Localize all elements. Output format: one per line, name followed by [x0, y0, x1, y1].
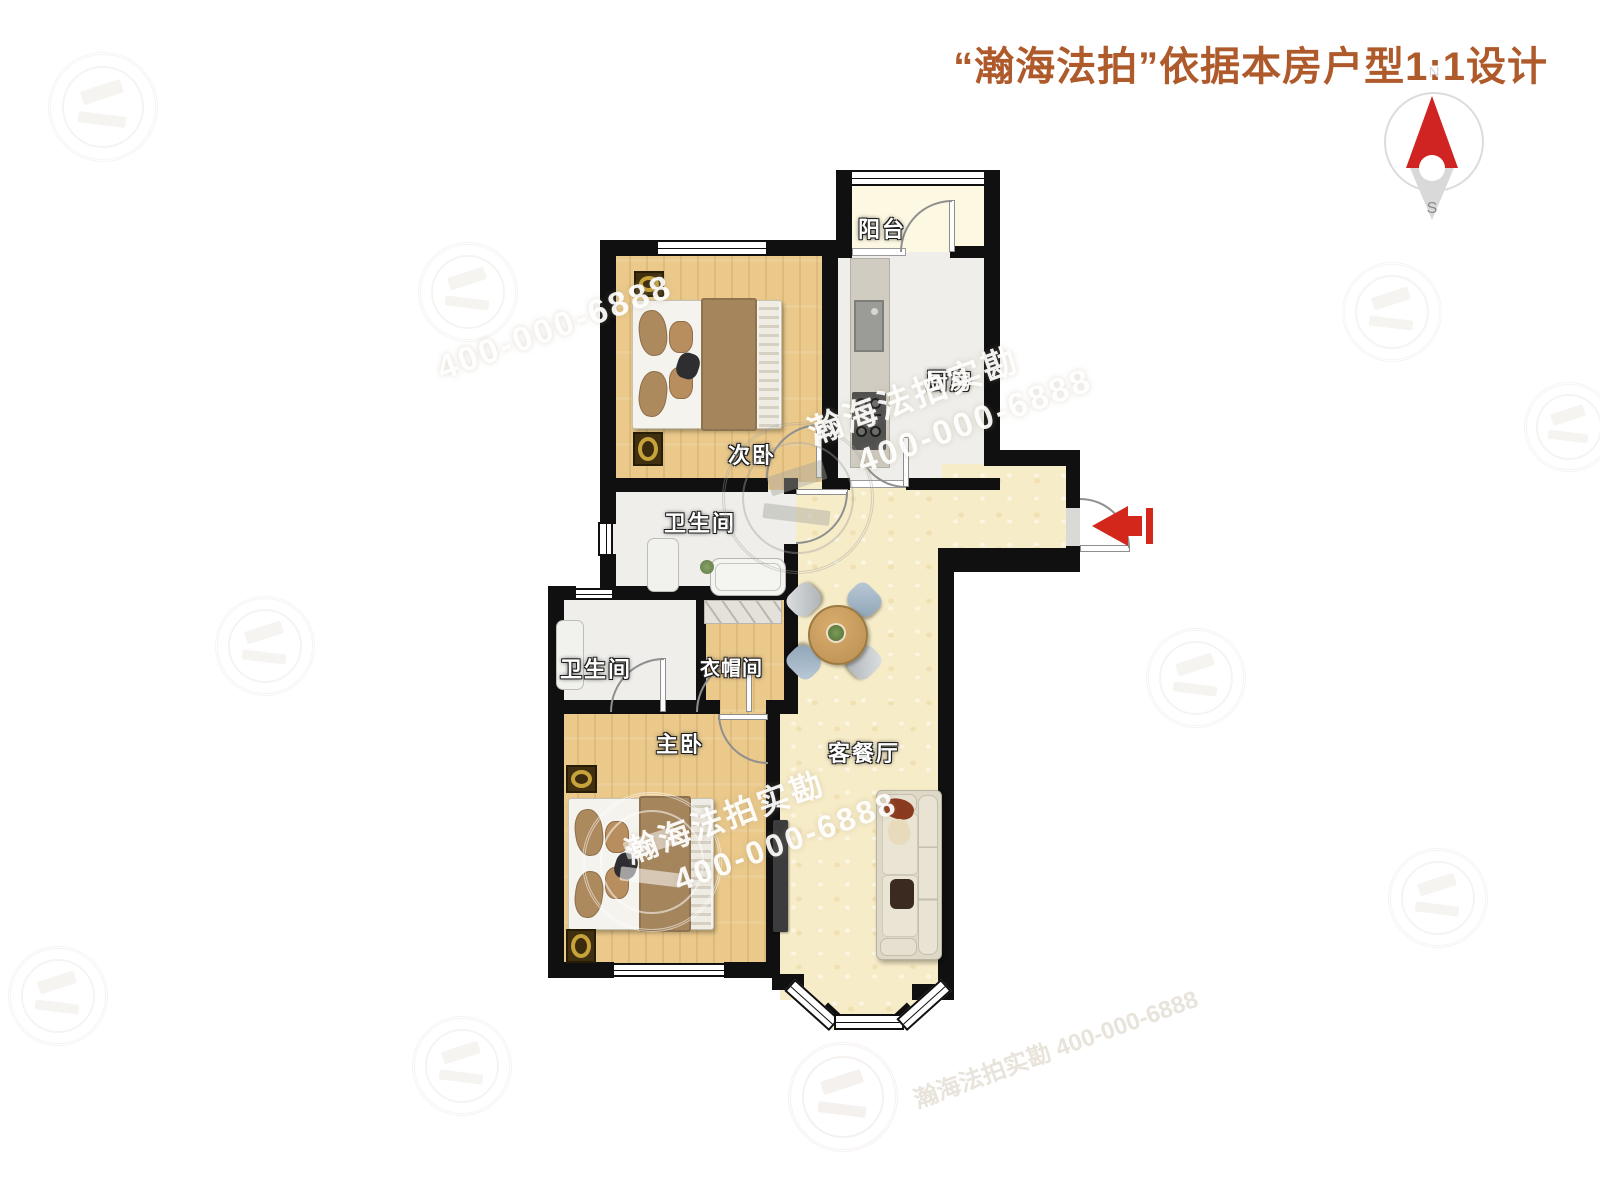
- entry-arrow-icon: [1092, 506, 1128, 546]
- wall-segment: [906, 478, 1000, 490]
- floorplan-page: “瀚海法拍”依据本房户型1:1设计 N S: [0, 0, 1600, 1200]
- room-label-cloakroom: 衣帽间: [700, 652, 763, 681]
- watermark-logo-icon: [1146, 628, 1246, 728]
- watermark-phone: 400-000-6888: [1052, 986, 1202, 1062]
- bedroom2-nightstand: [633, 432, 663, 466]
- master-window: [612, 963, 726, 977]
- entry-arrow-tail: [1146, 508, 1153, 544]
- entry-floor: [942, 464, 1068, 550]
- wall-segment: [548, 962, 614, 978]
- wardrobe: [704, 600, 782, 624]
- watermark-logo-icon: [1388, 848, 1488, 948]
- watermark-logo-icon: [412, 1016, 512, 1116]
- bath1-window: [598, 522, 613, 556]
- master-nightstand: [566, 929, 596, 963]
- compass-south-label: S: [1422, 200, 1442, 218]
- entry-arrow-stub: [1128, 516, 1142, 536]
- table-centerpiece: [828, 625, 844, 641]
- bedroom2-bed: [632, 300, 782, 429]
- room-label-master: 主卧: [656, 727, 704, 759]
- watermark-logo-icon: [1342, 262, 1442, 362]
- room-label-bath2: 卫生间: [560, 652, 632, 684]
- wall-segment: [1066, 450, 1080, 508]
- page-title: “瀚海法拍”依据本房户型1:1设计: [953, 34, 1548, 92]
- bathtub-plant: [700, 560, 714, 574]
- bath1-shower-cabinet: [647, 538, 679, 592]
- balcony-window: [850, 170, 986, 186]
- watermark-logo-icon: [48, 52, 158, 162]
- bay-window-center: [834, 1014, 904, 1030]
- balcony-door-sill: [852, 248, 906, 256]
- watermark-brand: 瀚海法拍实勘: [910, 1039, 1055, 1114]
- room-label-balcony: 阳台: [858, 212, 906, 244]
- wall-segment: [938, 548, 1080, 572]
- bedroom2-window: [656, 240, 768, 256]
- wall-segment: [950, 246, 1000, 258]
- bath2-window: [574, 588, 614, 600]
- watermark-logo-icon: [1524, 382, 1600, 472]
- watermark-logo-icon: [788, 1042, 898, 1152]
- watermark-logo-icon: [215, 596, 315, 696]
- master-nightstand: [566, 765, 597, 793]
- kitchen-sink: [854, 300, 884, 352]
- compass-north-label: N: [1424, 64, 1444, 81]
- compass-needle-hub: [1419, 155, 1445, 181]
- watermark-logo-icon: [8, 946, 108, 1046]
- entry-threshold: [1066, 508, 1080, 546]
